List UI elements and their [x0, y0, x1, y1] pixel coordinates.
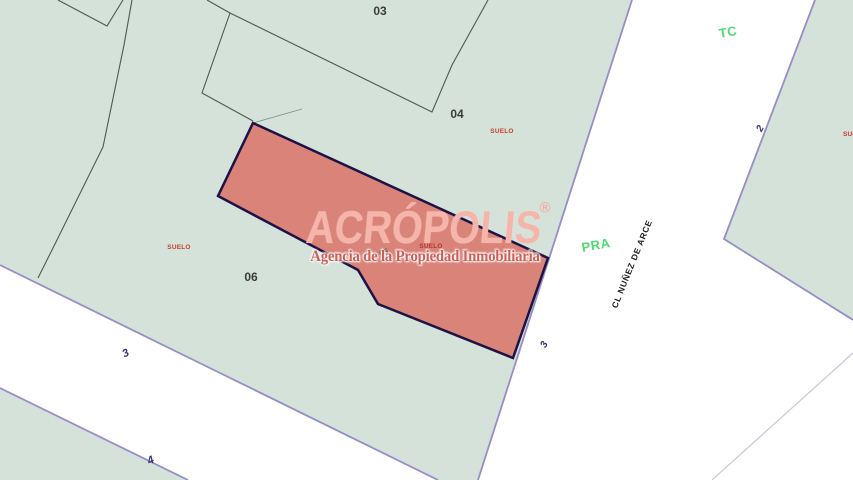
- zone-code-tc: TC: [718, 24, 738, 40]
- watermark-subtitle: Agencia de la Propiedad Inmobiliaria: [310, 249, 539, 265]
- registered-trademark-icon: ®: [539, 201, 550, 216]
- parcel-number-04: 04: [450, 108, 463, 120]
- parcel-number-06: 06: [244, 271, 257, 283]
- parcel-number-03: 03: [373, 5, 386, 17]
- suelo-tag-left: SUELO: [167, 245, 190, 252]
- cadastral-map: 03 04 06 05 SUELO SUELO SUELO SUELO TC P…: [0, 0, 853, 480]
- suelo-tag-right: SUELO: [843, 132, 853, 139]
- suelo-tag-top: SUELO: [490, 129, 513, 136]
- watermark-title: ACRÓPOLIS: [304, 204, 543, 250]
